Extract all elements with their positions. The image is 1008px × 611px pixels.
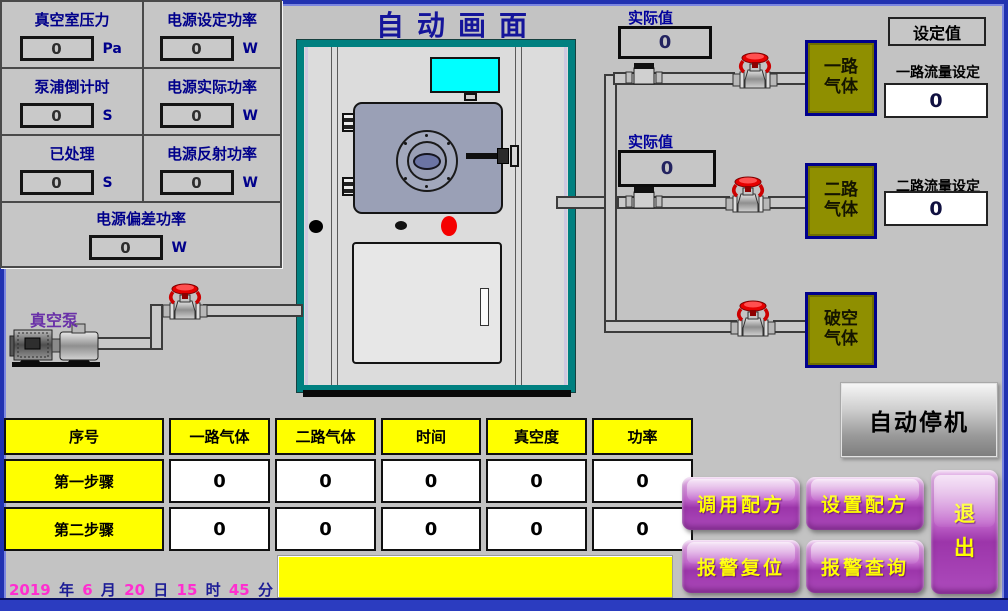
- gas2-source-box: 二路 气体: [805, 163, 877, 239]
- vent-name-line2: 气体: [824, 330, 858, 350]
- metric-power-deviation: 电源偏差功率 0 W: [2, 203, 280, 266]
- cabinet-profile-line: [331, 47, 338, 385]
- month-value: 6: [82, 581, 92, 599]
- minute-unit: 分: [258, 581, 273, 599]
- hmi-display-panel: [430, 57, 500, 93]
- table-header: 二路气体: [275, 418, 376, 455]
- gas1-source-box: 一路 气体: [805, 40, 877, 116]
- lower-door-handle: [480, 288, 489, 326]
- gas1-name-line2: 气体: [824, 78, 858, 98]
- gas1-actual-value-display: 0: [618, 26, 712, 59]
- metric-label: 已处理: [49, 143, 94, 164]
- valve-icon: [733, 50, 777, 92]
- step1-row-label: 第一步骤: [4, 459, 164, 503]
- table-header: 序号: [4, 418, 164, 455]
- recipe-load-label: 调用配方: [697, 490, 785, 517]
- step1-power-value: 0: [592, 459, 693, 503]
- metric-unit: S: [103, 108, 125, 124]
- porthole-flange: [396, 130, 458, 192]
- metric-unit: W: [172, 240, 194, 256]
- metric-label: 电源实际功率: [167, 76, 257, 97]
- pipe-riser-right: [604, 74, 617, 333]
- door-clamp-plate: [510, 145, 519, 167]
- metric-label: 泵浦倒计时: [34, 76, 109, 97]
- porthole-ring: [407, 141, 447, 181]
- recipe-set-button[interactable]: 设置配方: [806, 477, 924, 530]
- metric-unit: W: [243, 41, 265, 57]
- step1-gas1-value: 0: [169, 459, 270, 503]
- page-title: 自动画面: [318, 4, 598, 44]
- table-header: 功率: [592, 418, 693, 455]
- valve-icon: [163, 281, 207, 323]
- metric-unit: W: [243, 175, 265, 191]
- metric-value-display: 0: [160, 36, 234, 61]
- cabinet-profile-line: [515, 47, 522, 385]
- valve-icon: [731, 298, 775, 340]
- metric-label: 真空室压力: [34, 9, 109, 30]
- gas2-name-line1: 二路: [824, 181, 858, 201]
- metric-unit: S: [103, 175, 125, 191]
- pipe-riser-left: [150, 304, 163, 350]
- minute-value: 45: [229, 581, 250, 599]
- exit-button[interactable]: 退 出: [931, 470, 998, 594]
- lower-cabinet-door: [352, 242, 502, 364]
- vacuum-chamber-cabinet: [297, 40, 575, 392]
- day-unit: 日: [153, 581, 168, 599]
- metric-value-display: 0: [20, 103, 94, 128]
- metrics-panel: 真空室压力 0 Pa 电源设定功率 0 W 泵浦倒计时 0 S: [0, 0, 282, 268]
- metric-value-display: 0: [160, 170, 234, 195]
- recipe-set-label: 设置配方: [821, 490, 909, 517]
- metric-pump-countdown: 泵浦倒计时 0 S: [2, 69, 144, 134]
- metric-processed: 已处理 0 S: [2, 136, 144, 201]
- cabinet-trim: [564, 47, 567, 385]
- vent-name-line1: 破空: [824, 310, 858, 330]
- door-top-fitting: [464, 93, 477, 101]
- black-indicator-light: [395, 221, 407, 230]
- gas2-flow-set-input[interactable]: 0: [884, 191, 988, 226]
- pipe-gas2-to-box: [768, 196, 807, 209]
- metric-power-actual: 电源实际功率 0 W: [144, 69, 280, 134]
- step1-vacuum-value: 0: [486, 459, 587, 503]
- recipe-step-table: 序号 一路气体 二路气体 时间 真空度 功率 第一步骤 0 0 0 0 0 第二…: [4, 418, 693, 551]
- metric-power-reflected: 电源反射功率 0 W: [144, 136, 280, 201]
- pipe-vent-to-box: [773, 320, 807, 333]
- step1-gas2-value: 0: [275, 459, 376, 503]
- cabinet-trim: [305, 47, 308, 385]
- metric-label: 电源设定功率: [167, 9, 257, 30]
- actual-value-label: 实际值: [628, 7, 673, 28]
- year-value: 2019: [9, 581, 51, 599]
- metric-unit: W: [243, 108, 265, 124]
- alarm-message-bar: [277, 555, 673, 598]
- metrics-row-3: 已处理 0 S 电源反射功率 0 W: [2, 136, 280, 203]
- metric-value-display: 0: [160, 103, 234, 128]
- chamber-door: [353, 102, 503, 214]
- metric-vacuum-pressure: 真空室压力 0 Pa: [2, 2, 144, 67]
- actual-value-label: 实际值: [628, 131, 673, 152]
- exit-label-char2: 出: [954, 532, 975, 566]
- gas2-name-line2: 气体: [824, 201, 858, 221]
- month-unit: 月: [101, 581, 116, 599]
- hmi-auto-screen: 自动画面 真空室压力 0 Pa 电源设定功率 0 W 泵浦倒计时: [0, 0, 1008, 611]
- metrics-row-2: 泵浦倒计时 0 S 电源实际功率 0 W: [2, 69, 280, 136]
- gas1-flow-set-input[interactable]: 0: [884, 83, 988, 118]
- metric-value-display: 0: [20, 36, 94, 61]
- step2-row-label: 第二步骤: [4, 507, 164, 551]
- porthole-window: [413, 153, 441, 170]
- frame-black-dot: [309, 220, 323, 233]
- step2-power-value: 0: [592, 507, 693, 551]
- flow-meter-icon: [626, 184, 662, 212]
- hour-value: 15: [177, 581, 198, 599]
- valve-icon: [726, 174, 770, 216]
- gas1-flow-set-label: 一路流量设定: [872, 62, 1004, 82]
- exit-label-char1: 退: [954, 498, 975, 532]
- recipe-load-button[interactable]: 调用配方: [682, 477, 800, 530]
- alarm-reset-button[interactable]: 报警复位: [682, 540, 800, 593]
- gas2-actual-value-display: 0: [618, 150, 716, 187]
- door-clamp-block: [497, 148, 509, 164]
- metrics-row-1: 真空室压力 0 Pa 电源设定功率 0 W: [2, 2, 280, 69]
- alarm-query-label: 报警查询: [821, 553, 909, 580]
- alarm-query-button[interactable]: 报警查询: [806, 540, 924, 593]
- step2-gas2-value: 0: [275, 507, 376, 551]
- step2-vacuum-value: 0: [486, 507, 587, 551]
- day-value: 20: [124, 581, 145, 599]
- table-header: 时间: [381, 418, 481, 455]
- flow-meter-icon: [626, 60, 662, 88]
- metric-label: 电源反射功率: [167, 143, 257, 164]
- metric-value-display: 0: [89, 235, 163, 260]
- hour-unit: 时: [206, 581, 221, 599]
- alarm-reset-label: 报警复位: [697, 553, 785, 580]
- step1-time-value: 0: [381, 459, 481, 503]
- red-indicator-light: [441, 216, 457, 236]
- year-unit: 年: [59, 581, 74, 599]
- auto-stop-button[interactable]: 自动停机: [840, 382, 998, 458]
- table-header: 一路气体: [169, 418, 270, 455]
- step2-time-value: 0: [381, 507, 481, 551]
- table-header: 真空度: [486, 418, 587, 455]
- pipe-to-chamber: [203, 304, 303, 317]
- datetime-display: 2019 年 6 月 20 日 15 时 45 分: [8, 579, 276, 600]
- step2-gas1-value: 0: [169, 507, 270, 551]
- vacuum-pump-label: 真空泵: [30, 307, 78, 331]
- metric-unit: Pa: [103, 41, 125, 57]
- pipe-vent: [604, 320, 737, 333]
- set-value-title: 设定值: [888, 17, 986, 46]
- metric-value-display: 0: [20, 170, 94, 195]
- metric-power-set: 电源设定功率 0 W: [144, 2, 280, 67]
- cabinet-base: [303, 390, 571, 397]
- gas1-name-line1: 一路: [824, 58, 858, 78]
- vent-gas-box: 破空 气体: [805, 292, 877, 368]
- metric-label: 电源偏差功率: [96, 208, 186, 229]
